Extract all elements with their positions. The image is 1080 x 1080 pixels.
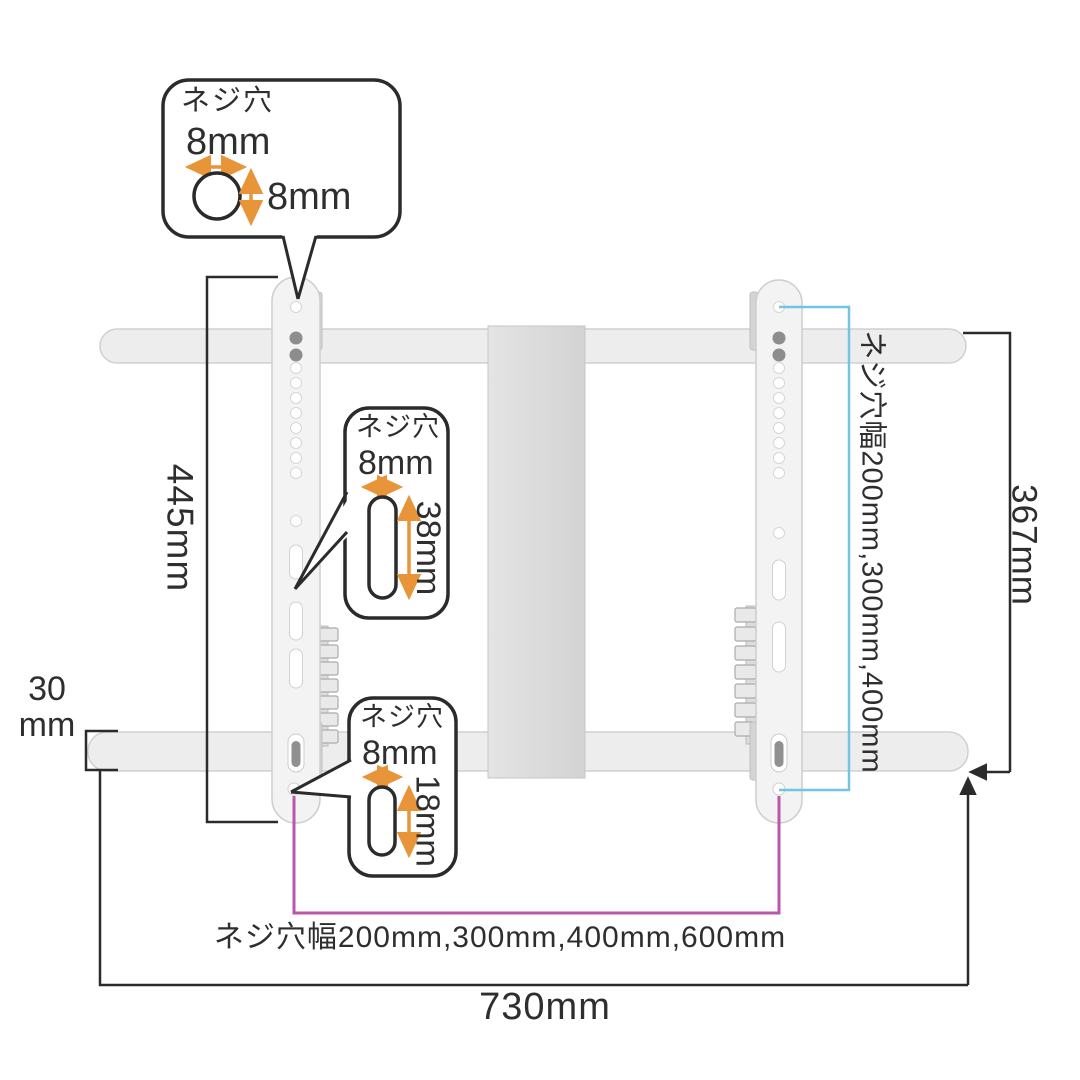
dim-367-line [963, 333, 1010, 772]
callout-top-height-label: 8mm [267, 178, 351, 216]
vesa-width-horizontal-label: ネジ穴幅200mm,300mm,400mm,600mm [214, 923, 786, 953]
screw-slot [369, 787, 395, 855]
screw-hole-circle [194, 173, 240, 219]
screw-slot [369, 497, 396, 598]
callout-middle-height-label: 38mm [411, 501, 445, 595]
callout-bottom-title: ネジ穴 [360, 704, 444, 731]
dim-730mm-label: 730mm [479, 988, 611, 1026]
dim-445mm-label: 445mm [162, 464, 199, 592]
right-bracket [750, 280, 802, 823]
center-plate [488, 326, 585, 778]
callout-bottom-width-label: 8mm [362, 736, 438, 770]
dim-30mm-value: 30 [14, 671, 80, 707]
dim-30mm-unit: mm [14, 707, 80, 743]
dim-30mm-label: 30 mm [14, 671, 80, 743]
callout-bottom-height-label: 18mm [412, 775, 445, 867]
dim-367mm-label: 367mm [1007, 484, 1042, 606]
mount-diagram-page: ネジ穴 8mm 8mm ネジ穴 8mm 38mm ネジ穴 8mm 18mm 44… [0, 0, 1080, 1080]
callout-top-title: ネジ穴 [181, 87, 274, 116]
callout-middle-title: ネジ穴 [356, 414, 440, 441]
vesa-width-vertical-label: ネジ穴幅200mm,300mm,400mm [857, 330, 886, 773]
callout-top-width-label: 8mm [186, 123, 270, 161]
callout-middle-width-label: 8mm [358, 446, 434, 480]
